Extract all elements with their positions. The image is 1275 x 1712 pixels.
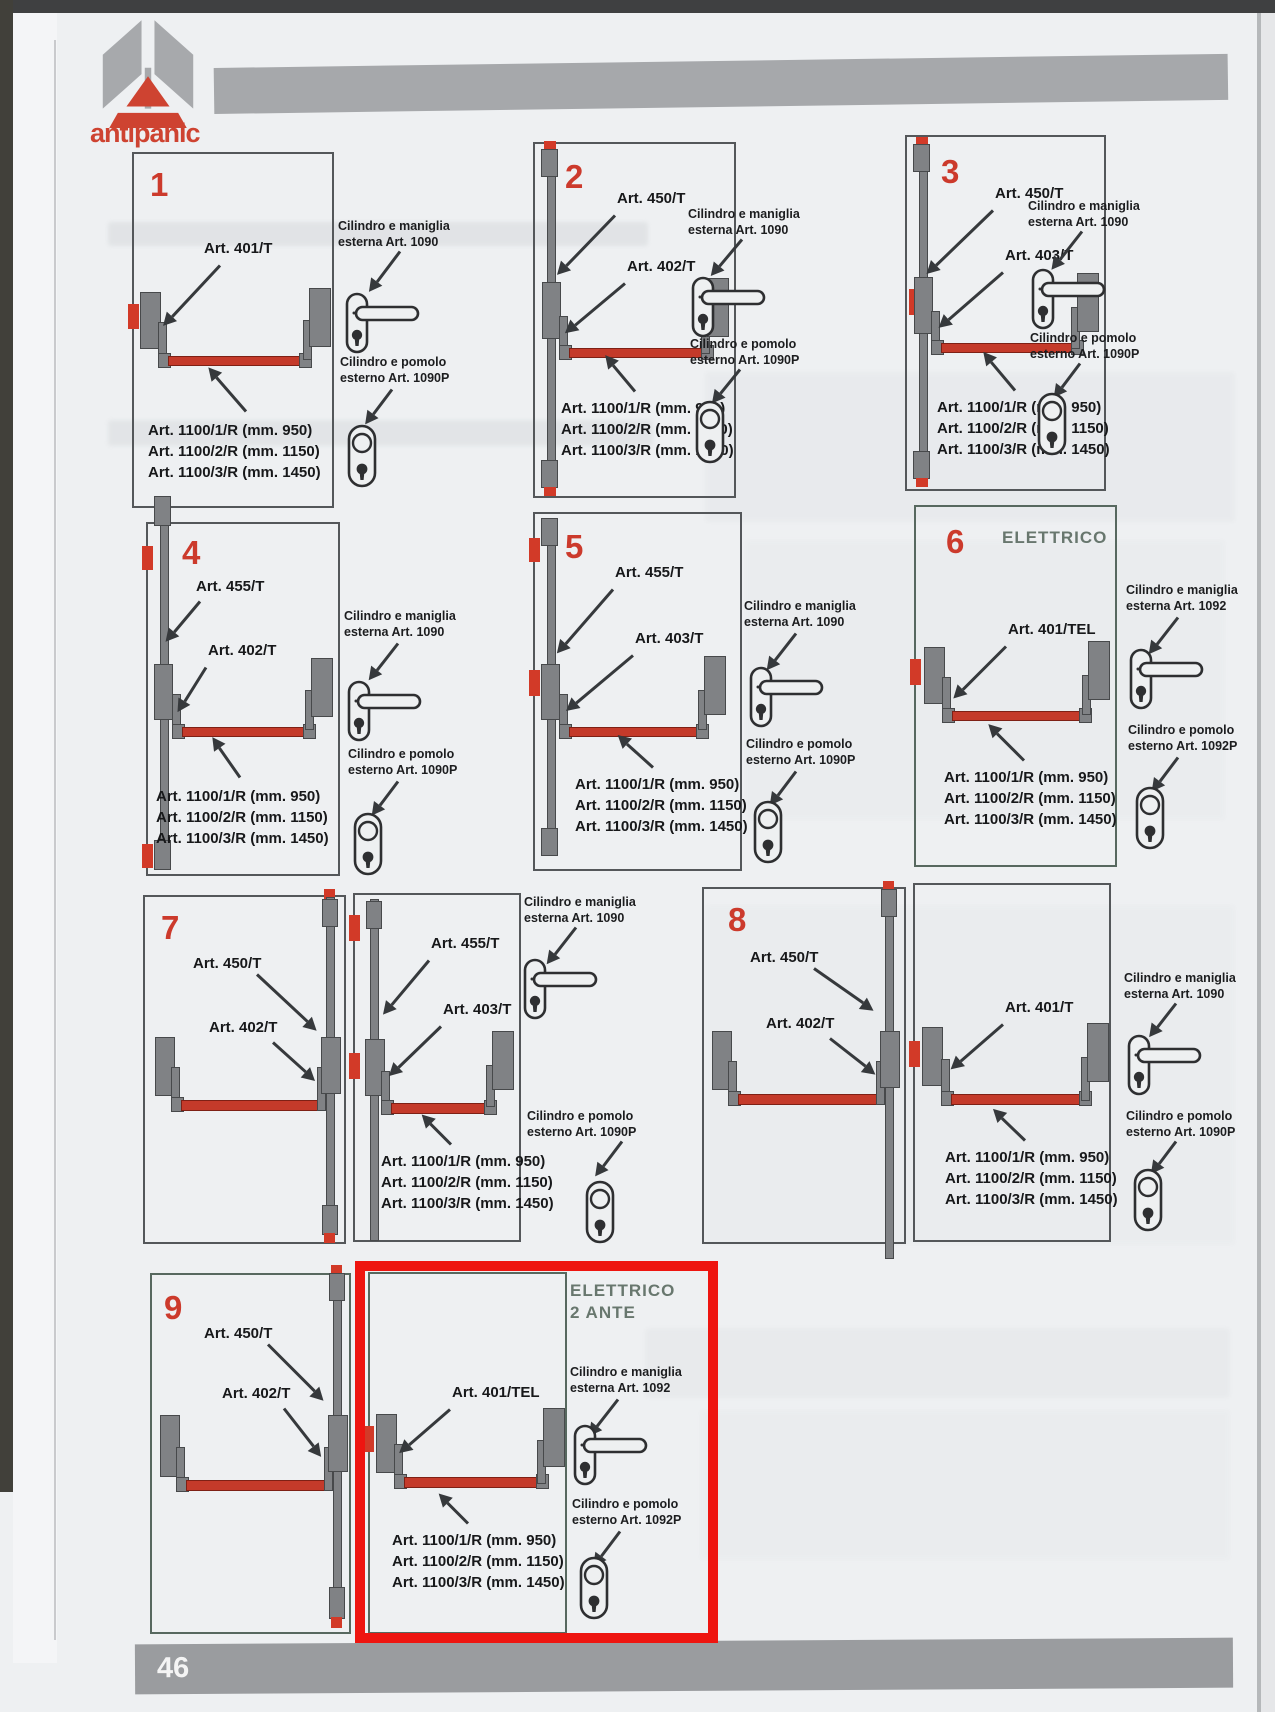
panel-8-right-door: Art. 401/T Art. 1100/1/R (mm. 950) Art. … [913,883,1111,1242]
arrow [376,643,399,672]
knob-icon [584,1180,616,1244]
arrow [626,743,654,769]
arrow [935,209,994,266]
panic-bar [951,1094,1082,1105]
door-stile [492,1031,514,1090]
red-strike [910,659,921,685]
part-label: Art. 403/T [443,1001,511,1018]
sizes-list: Art. 1100/1/R (mm. 950) Art. 1100/2/R (m… [381,1151,554,1214]
handle-icon [690,276,768,338]
highlight-box [355,1261,718,1643]
cylinder-handle-label: Cilindro e maniglia esterna Art. 1090 [688,206,833,238]
rod-guide-block [880,1031,900,1088]
arrow [602,1141,623,1168]
cylinder-knob-label: Cilindro e pomolo esterno Art. 1090P [527,1108,672,1140]
rod-end-block [541,518,558,546]
cylinder-handle-label: Cilindro e maniglia esterna Art. 1090 [338,218,483,250]
arrow [376,251,401,283]
arrow [398,1025,443,1068]
part-label: Art. 402/T [766,1015,834,1032]
knob-icon [352,812,384,876]
rod-red-tip [331,1617,342,1628]
panic-bar [391,1103,487,1114]
part-label: Art. 450/T [193,955,261,972]
arrow [554,927,577,956]
panel-5: 5 Art. 455/T Art. 403/T Art. 1100/1/R (m… [533,512,742,871]
panic-bar [168,356,302,366]
part-label: Art. 403/T [635,630,703,647]
sizes-list: Art. 1100/1/R (mm. 950) Art. 1100/2/R (m… [937,397,1110,460]
arrow [283,1408,315,1448]
rod-end-block [541,149,558,177]
arrow [565,214,616,266]
door-stile [311,658,333,717]
arrow [379,781,399,807]
arrow [218,747,241,778]
part-label: Art. 450/T [750,949,818,966]
rod-guide-block [328,1415,348,1472]
arrow [391,960,431,1006]
door-stile [309,288,331,347]
red-strike [128,304,139,329]
rod-end-block [541,828,558,856]
knob-icon [1036,392,1068,456]
arrow [996,733,1025,762]
part-label: Art. 402/T [222,1385,290,1402]
panel-number: 2 [565,158,583,196]
part-label: Art. 401/TEL [1008,621,1096,638]
arrow [272,1041,307,1073]
bleedthrough-block [700,1410,1230,1560]
part-label: Art. 402/T [208,642,276,659]
cylinder-handle-label: Cilindro e maniglia esterna Art. 1090 [1028,198,1173,230]
arrow [256,973,309,1022]
rod-red-tip [324,1233,335,1243]
panel-title: ELETTRICO [1002,527,1107,549]
rod-end-block [881,889,897,917]
sizes-list: Art. 1100/1/R (mm. 950) Art. 1100/2/R (m… [156,786,329,849]
arrow [565,589,615,645]
cylinder-knob-label: Cilindro e pomolo esterno Art. 1092P [1128,722,1273,754]
red-strike [909,1041,920,1067]
arrow [1001,1117,1026,1141]
rod-end-block [322,899,338,927]
part-label: Art. 455/T [615,564,683,581]
panic-bar [569,348,703,358]
arrow [829,1037,866,1067]
panel-number: 4 [182,534,200,572]
door-stile [922,1027,943,1086]
brand-wordmark: antipanic [90,118,220,149]
rod-end-block [366,901,382,929]
part-label: Art. 401/T [1005,999,1073,1016]
rod-end-block [154,496,171,526]
cylinder-knob-label: Cilindro e pomolo esterno Art. 1090P [746,736,891,768]
cylinder-knob-label: Cilindro e pomolo esterno Art. 1090P [690,336,835,368]
cylinder-knob-label: Cilindro e pomolo esterno Art. 1090P [1126,1108,1271,1140]
part-label: Art. 402/T [627,258,695,275]
red-strike [142,546,153,570]
arrow [612,364,636,392]
part-label: Art. 455/T [431,935,499,952]
cylinder-handle-label: Cilindro e maniglia esterna Art. 1090 [744,598,889,630]
arrow [575,654,634,704]
knob-icon [1132,1168,1164,1232]
sizes-list: Art. 1100/1/R (mm. 950) Art. 1100/2/R (m… [945,1147,1118,1210]
rod-red-tip [544,487,556,496]
page-right-margin [1261,13,1275,1712]
catalog-page: antipanic 1 Art. 401/T Art. 1100/1/R (mm… [0,0,1275,1712]
arrow [962,645,1007,690]
part-label: Art. 450/T [204,1325,272,1342]
arrow [173,601,201,634]
panel-number: 5 [565,528,583,566]
red-strike [529,538,540,562]
page-edge [13,13,57,1663]
part-label: Art. 455/T [196,578,264,595]
rod-end-block [329,1587,345,1619]
cylinder-knob-label: Cilindro e pomolo esterno Art. 1090P [1030,330,1175,362]
arrow [813,967,864,1004]
rod-guide-block [541,664,560,720]
bleedthrough-band [645,1328,1230,1398]
part-label: Art. 402/T [209,1019,277,1036]
knob-icon [1134,786,1166,850]
panic-bar [181,1100,319,1111]
panel-number: 9 [164,1289,182,1327]
red-strike [142,844,153,868]
arrow [429,1123,452,1146]
arrow [184,667,208,703]
rod-red-tip [916,478,928,487]
handle-icon [346,680,424,742]
part-label: Art. 401/T [204,240,272,257]
panel-7-left-door: 7 Art. 450/T Art. 402/T [143,895,346,1244]
panel-4: 4 Art. 455/T Art. 402/T Art. 1100/1/R (m… [146,522,340,876]
knob-icon [752,800,784,864]
panel-8-left-door: 8 Art. 450/T Art. 402/T [702,887,906,1244]
header-bar [214,54,1229,114]
part-label: Art. 450/T [617,190,685,207]
cylinder-handle-label: Cilindro e maniglia esterna Art. 1090 [344,608,489,640]
panel-number: 1 [150,166,168,204]
page-number: 46 [157,1652,189,1685]
arrow [215,377,247,413]
sizes-list: Art. 1100/1/R (mm. 950) Art. 1100/2/R (m… [944,767,1117,830]
knob-icon [694,400,726,464]
arrow [574,282,626,326]
red-strike [529,670,540,696]
red-strike [349,1053,360,1079]
cylinder-knob-label: Cilindro e pomolo esterno Art. 1090P [348,746,493,778]
red-strike [349,915,360,941]
footer-bar: 46 [135,1638,1233,1695]
door-stile [704,656,726,715]
cylinder-handle-label: Cilindro e maniglia esterna Art. 1090 [1124,970,1269,1002]
cylinder-handle-label: Cilindro e maniglia esterna Art. 1092 [1126,582,1271,614]
panel-6: 6 ELETTRICO Art. 401/TEL Art. 1100/1/R (… [914,505,1117,867]
rod-end-block [322,1205,338,1235]
handle-icon [344,292,422,354]
door-stile [1087,1023,1109,1082]
panel-7-right-door: Art. 455/T Art. 403/T Art. 1100/1/R (mm.… [353,893,521,1242]
panic-bar [569,727,699,737]
panel-number: 6 [946,523,964,561]
rod-end-block [541,460,558,488]
panel-number: 7 [161,909,179,947]
knob-icon [346,424,378,488]
panic-bar [186,1480,326,1491]
door-stile [1088,641,1110,700]
rod-end-block [913,144,930,172]
panic-bar [738,1094,878,1105]
sizes-list: Art. 1100/1/R (mm. 950) Art. 1100/2/R (m… [148,420,321,483]
arrow [948,271,1004,321]
arrow [990,361,1016,391]
panel-number: 3 [941,153,959,191]
arrow [960,1023,1004,1062]
arrow [372,389,393,416]
rod-guide-block [154,664,173,720]
cylinder-knob-label: Cilindro e pomolo esterno Art. 1090P [340,354,485,386]
rod-guide-block [321,1037,341,1094]
panic-bar [182,727,306,737]
scan-top-edge [0,0,1275,13]
panel-1: 1 Art. 401/T Art. 1100/1/R (mm. 950) Art… [132,152,334,508]
handle-icon [1126,1034,1204,1096]
arrow [171,264,221,317]
panel-9-left-door: 9 Art. 450/T Art. 402/T [150,1273,351,1634]
panel-number: 8 [728,901,746,939]
sizes-list: Art. 1100/1/R (mm. 950) Art. 1100/2/R (m… [575,774,748,837]
handle-icon [748,666,826,728]
rod-end-block [913,451,930,479]
scan-left-edge [0,0,13,1492]
handle-icon [522,958,600,1020]
fold-line [54,40,56,1640]
panic-bar [952,711,1084,721]
cylinder-handle-label: Cilindro e maniglia esterna Art. 1090 [524,894,669,926]
rod-end-block [329,1273,345,1301]
handle-icon [1128,648,1206,710]
handle-icon [1030,268,1108,330]
